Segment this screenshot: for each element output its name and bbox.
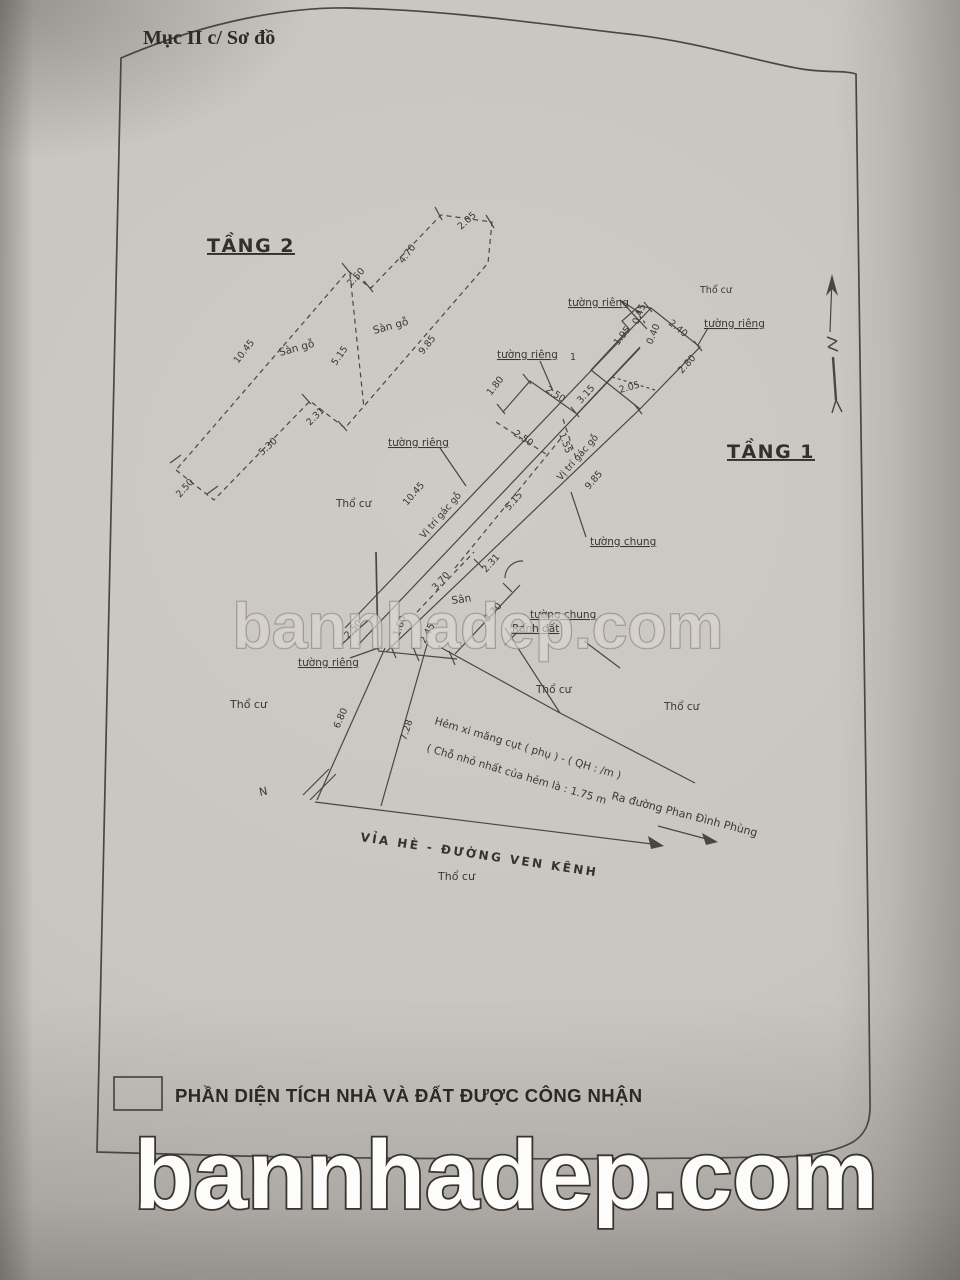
- label-vi-tri-gac-go-1: Vị trí gác gỗ: [418, 490, 464, 541]
- dim-upper-left: 1.95: [612, 324, 634, 347]
- label-tho-cu-farright: Thổ cư: [663, 700, 701, 713]
- dim-gac-long: 10.45: [401, 480, 427, 508]
- dim-floor2-top-upper: 4.70: [397, 242, 419, 265]
- label-tho-cu-midright: Thổ cư: [535, 683, 573, 696]
- dim-hem-a: 6.80: [332, 706, 351, 730]
- dim-floor2-step-top: 2.50: [345, 266, 367, 289]
- dim-wall-right: 9.85: [583, 469, 605, 492]
- door-swing-arc: [505, 561, 523, 578]
- watermark-middle: bannhadep.com: [233, 590, 724, 662]
- dim-floor2-divider: 5.15: [329, 344, 350, 368]
- dim-floor2-left-long: 10.45: [232, 338, 257, 366]
- north-arrow-lower: [833, 357, 836, 400]
- dim-mid-dash2: 1.55: [556, 431, 574, 455]
- floor1-title: TẦNG 1: [727, 437, 815, 463]
- north-arrow-fork: [832, 400, 842, 413]
- dim-top-side: 2.80: [676, 353, 698, 376]
- legend: PHẦN DIỆN TÍCH NHÀ VÀ ĐẤT ĐƯỢC CÔNG NHẬN: [114, 1077, 643, 1110]
- room-label-san-go: Sàn gỗ: [371, 315, 409, 337]
- dim-floor2-step-bottom: 2.31: [304, 405, 327, 428]
- floor1-plan: TẦNG 1: [229, 285, 815, 883]
- page-frame: [97, 8, 870, 1159]
- annotation-via-he: VỈA HÈ - ĐƯỜNG VEN KÊNH: [360, 828, 600, 879]
- dim-divider: 5.15: [503, 490, 525, 513]
- label-tuong-rieng-1: tường riêng: [568, 297, 629, 309]
- dim-top-dash: 2.05: [618, 379, 641, 395]
- label-tho-cu-topright: Thổ cư: [699, 285, 733, 296]
- dim-hem-b: 7.28: [398, 718, 415, 742]
- label-tho-cu-left: Thổ cư: [229, 698, 268, 711]
- legend-swatch-box: [114, 1077, 162, 1110]
- dim-mid-side: 1.80: [485, 374, 507, 397]
- watermark-bottom: bannhadep.com: [134, 1120, 878, 1229]
- road-arrowhead: [648, 836, 664, 849]
- label-tuong-rieng-3: tường riêng: [497, 349, 558, 361]
- hem-line-a: [317, 648, 385, 800]
- label-one: 1: [570, 352, 576, 363]
- legend-label: PHẦN DIỆN TÍCH NHÀ VÀ ĐẤT ĐƯỢC CÔNG NHẬN: [175, 1085, 643, 1106]
- dim-floor2-bottom-end: 2.50: [174, 477, 196, 500]
- photographed-document-page: Mục II c/ Sơ đồ TẦNG 2 10.45 Sàn gỗ 5.15…: [0, 0, 960, 1280]
- dim-mid-width: 2.50: [543, 384, 567, 405]
- boundary-right: [560, 713, 695, 783]
- label-tuong-chung-1: tường chung: [590, 536, 656, 548]
- floor2-divider-line: [350, 274, 364, 408]
- dim-notch-a: 0.45: [631, 302, 649, 326]
- label-tho-cu-under-floor2: Thổ cư: [335, 497, 373, 510]
- site-plan-drawing: Mục II c/ Sơ đồ TẦNG 2 10.45 Sàn gỗ 5.15…: [0, 0, 960, 1280]
- dim-yard-step: 2.31: [480, 552, 502, 575]
- dim-floor2-tip: 2.05: [456, 210, 479, 232]
- label-tuong-rieng-2: tường riêng: [704, 318, 765, 330]
- dim-floor2-right-long: 9.85: [417, 333, 439, 356]
- north-arrow-scribble: [827, 337, 838, 351]
- section-title: Mục II c/ Sơ đồ: [143, 27, 275, 49]
- dim-notch-b: 0.40: [645, 322, 663, 346]
- north-letter: N: [258, 785, 269, 799]
- floor1-top-room: [591, 306, 700, 409]
- floor2-title: TẦNG 2: [207, 231, 295, 257]
- ra-duong-arrowhead: [702, 833, 718, 845]
- label-tho-cu-bottom: Thổ cư: [437, 870, 476, 883]
- page-border: [97, 8, 870, 1159]
- room-label-san-go: Sàn gỗ: [277, 337, 315, 359]
- annotation-ra-duong: Ra đường Phan Đình Phùng: [610, 789, 759, 839]
- label-tuong-rieng-4: tường riêng: [388, 437, 449, 449]
- dim-floor2-bottom-inner: 5.30: [257, 436, 280, 458]
- north-arrow-icon: [826, 274, 842, 413]
- dim-mid-dash: 2.50: [511, 428, 535, 449]
- dim-mid-upper: 3.15: [575, 383, 597, 406]
